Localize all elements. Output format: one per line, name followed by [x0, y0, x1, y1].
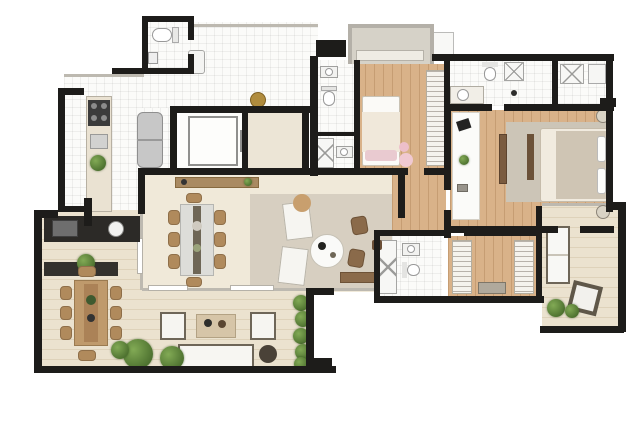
- balcony1-rail-top: [348, 24, 434, 28]
- bedroom1-wardrobe: [426, 70, 446, 166]
- terrace-armchair-1: [160, 312, 186, 340]
- wicker-chair-2: [347, 248, 366, 269]
- wall-segment: [84, 198, 92, 226]
- wall-segment: [464, 230, 542, 236]
- terrace-chair-2: [60, 306, 72, 320]
- wall-segment: [314, 132, 356, 136]
- bath1-sink-bowl: [325, 68, 333, 76]
- wall-segment: [58, 206, 86, 212]
- wall-segment: [306, 288, 334, 295]
- living-pouf: [293, 194, 311, 212]
- sliding-door-leaf-1: [148, 285, 188, 291]
- mbath-shower: [504, 62, 524, 81]
- coffee-bowl-2: [218, 320, 226, 328]
- wall-segment: [316, 40, 346, 57]
- round-table-decor-1: [318, 242, 326, 250]
- balcony-plant-2: [565, 304, 579, 318]
- bath1b-shower: [316, 138, 334, 168]
- dining-runner: [193, 206, 201, 274]
- coffee-bowl-1: [204, 319, 212, 327]
- dining-chair-4: [214, 210, 226, 225]
- kitchen-plant: [90, 155, 106, 171]
- wall-segment: [142, 16, 194, 22]
- wall-segment: [432, 54, 614, 61]
- wall-segment: [580, 226, 614, 233]
- bed-bench: [527, 134, 534, 180]
- dining-chair-7: [186, 193, 202, 203]
- dining-chair-5: [214, 232, 226, 247]
- wall-segment: [504, 104, 614, 111]
- wall-segment: [188, 16, 194, 40]
- wall-segment: [34, 210, 42, 372]
- terrace-decor-2: [87, 314, 95, 322]
- desk-plant: [459, 155, 469, 165]
- wall-segment: [58, 88, 65, 212]
- lavabo-toilet: [152, 28, 172, 42]
- bath2-sink-bowl: [407, 245, 415, 253]
- wall-segment: [552, 56, 558, 106]
- service-shaft-floor: [248, 112, 304, 170]
- fridge-divider: [137, 139, 163, 141]
- balcony-plant-1: [547, 299, 565, 317]
- living-bench: [340, 272, 376, 283]
- wall-segment: [618, 202, 626, 332]
- terrace-chair-6: [110, 326, 122, 340]
- wall-segment: [58, 88, 84, 95]
- wall-segment: [444, 104, 492, 111]
- wall-segment: [138, 168, 145, 214]
- desk-frame: [457, 184, 468, 192]
- lounge-chair-split: [548, 254, 568, 256]
- bed1-pouf-1: [399, 142, 409, 152]
- burner-1: [91, 103, 97, 109]
- lavabo-sink: [148, 52, 158, 64]
- wall-segment: [170, 106, 310, 113]
- sliding-door-leaf-3: [137, 238, 143, 274]
- balcony1-bench: [356, 50, 424, 61]
- bed1-pouf-2: [399, 153, 413, 167]
- bed1-pillow: [365, 150, 397, 161]
- terrace-chair-3: [60, 326, 72, 340]
- wicker-chair-1: [350, 215, 369, 236]
- terrace-chair-1: [60, 286, 72, 300]
- bath1-toilet: [323, 91, 335, 106]
- wall-segment: [354, 60, 360, 174]
- wall-segment: [606, 202, 626, 210]
- wall-segment: [314, 168, 408, 175]
- dining-decor-1: [192, 221, 202, 231]
- kitchen-window: [64, 74, 144, 77]
- burner-3: [91, 115, 97, 121]
- terrace-chair-4: [110, 286, 122, 300]
- dining-decor-2: [193, 244, 201, 252]
- elevator-cab: [188, 116, 238, 166]
- mbath-toilet: [484, 67, 496, 81]
- dining-chair-6: [214, 254, 226, 269]
- terrace-table-runner: [84, 284, 98, 342]
- shaft-plain: [588, 64, 606, 84]
- master-pillow-1: [597, 136, 606, 162]
- kitchen-sink: [90, 134, 108, 149]
- wall-segment: [242, 110, 248, 170]
- service-window: [192, 24, 318, 27]
- terrace-chair-5: [110, 306, 122, 320]
- dining-chair-1: [168, 210, 180, 225]
- floor-plan: [0, 0, 640, 427]
- wall-segment: [374, 230, 380, 302]
- wall-segment: [112, 68, 144, 74]
- wall-segment: [308, 358, 332, 366]
- wall-segment: [444, 104, 451, 190]
- master-pillow-2: [597, 168, 606, 194]
- terrace-decor-1: [86, 295, 96, 305]
- wall-segment: [34, 210, 58, 218]
- balcony1-rail-left: [348, 24, 352, 64]
- mbath-sink: [457, 89, 469, 101]
- living-round-table: [310, 234, 344, 268]
- lavabo-toilet-tank: [172, 27, 179, 43]
- grill-sink: [108, 221, 124, 237]
- terrace-chair-8: [78, 350, 96, 361]
- terrace-armchair-2: [250, 312, 276, 340]
- wall-segment: [142, 68, 194, 74]
- wall-segment: [34, 366, 336, 373]
- wall-segment: [374, 230, 450, 236]
- chaise-2: [277, 246, 308, 286]
- closet-wardrobe-right: [514, 240, 534, 294]
- mbath-spot: [511, 90, 517, 96]
- bath2-toilet: [407, 264, 420, 276]
- dining-chair-8: [186, 277, 202, 287]
- bed1-duvet: [362, 112, 400, 152]
- wall-segment: [170, 106, 177, 174]
- terrace-coffee-table: [196, 314, 236, 338]
- wall-segment: [138, 168, 310, 175]
- sliding-door-leaf-2: [230, 285, 274, 291]
- wall-segment: [302, 106, 309, 174]
- bath1b-sink-bowl: [340, 148, 348, 156]
- tv-panel: [499, 134, 507, 184]
- console-decor-1: [181, 179, 187, 185]
- grill: [52, 220, 78, 237]
- wall-segment: [444, 60, 450, 106]
- dining-chair-3: [168, 254, 180, 269]
- burner-4: [101, 115, 107, 121]
- wall-segment: [606, 56, 613, 212]
- console-decor-2: [244, 178, 252, 186]
- wall-segment: [536, 206, 542, 300]
- closet-wardrobe-left: [452, 240, 472, 294]
- wall-segment: [398, 168, 405, 218]
- palm-3: [111, 341, 129, 359]
- round-table-decor-2: [330, 252, 336, 258]
- terrace-pouf: [259, 345, 277, 363]
- wall-segment: [374, 296, 544, 303]
- shaft-xbox: [560, 64, 584, 84]
- dining-chair-2: [168, 232, 180, 247]
- wall-segment: [142, 16, 148, 74]
- wall-segment: [540, 326, 624, 333]
- closet-bench: [478, 282, 506, 294]
- wall-segment: [310, 56, 318, 176]
- terrace-chair-7: [78, 266, 96, 277]
- burner-2: [101, 103, 107, 109]
